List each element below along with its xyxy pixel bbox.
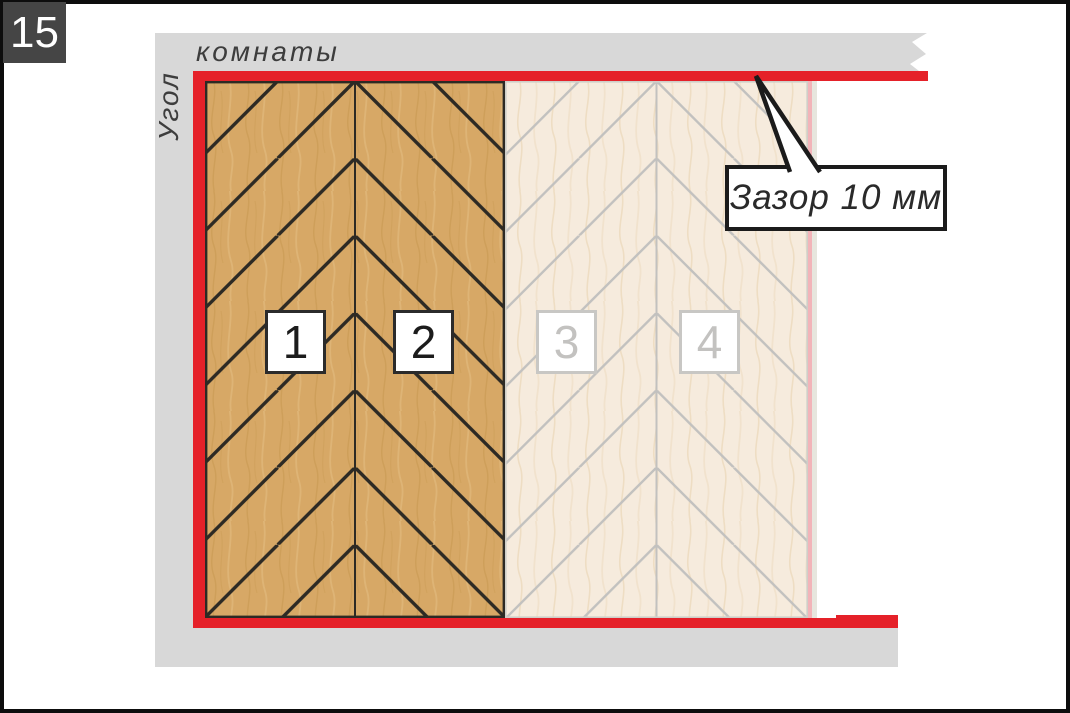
plank-label-2: 2	[393, 310, 454, 374]
plank-label-1: 1	[265, 310, 326, 374]
callout-pointer-icon	[730, 68, 830, 178]
wall-bottom	[155, 628, 898, 667]
room-corner-label-vertical: Угол	[148, 66, 190, 146]
gap-line-bottom	[193, 618, 836, 628]
plank-label-4: 4	[679, 310, 740, 374]
room-corner-label-horizontal: комнаты	[196, 36, 340, 68]
step-number-badge: 15	[3, 2, 66, 63]
plank-label-3: 3	[536, 310, 597, 374]
gap-line-left	[193, 71, 205, 628]
instruction-diagram: Угол комнаты 1 2 3 4 Зазор 10 мм 15	[0, 0, 1070, 713]
gap-line-bottom-extension	[836, 615, 898, 628]
